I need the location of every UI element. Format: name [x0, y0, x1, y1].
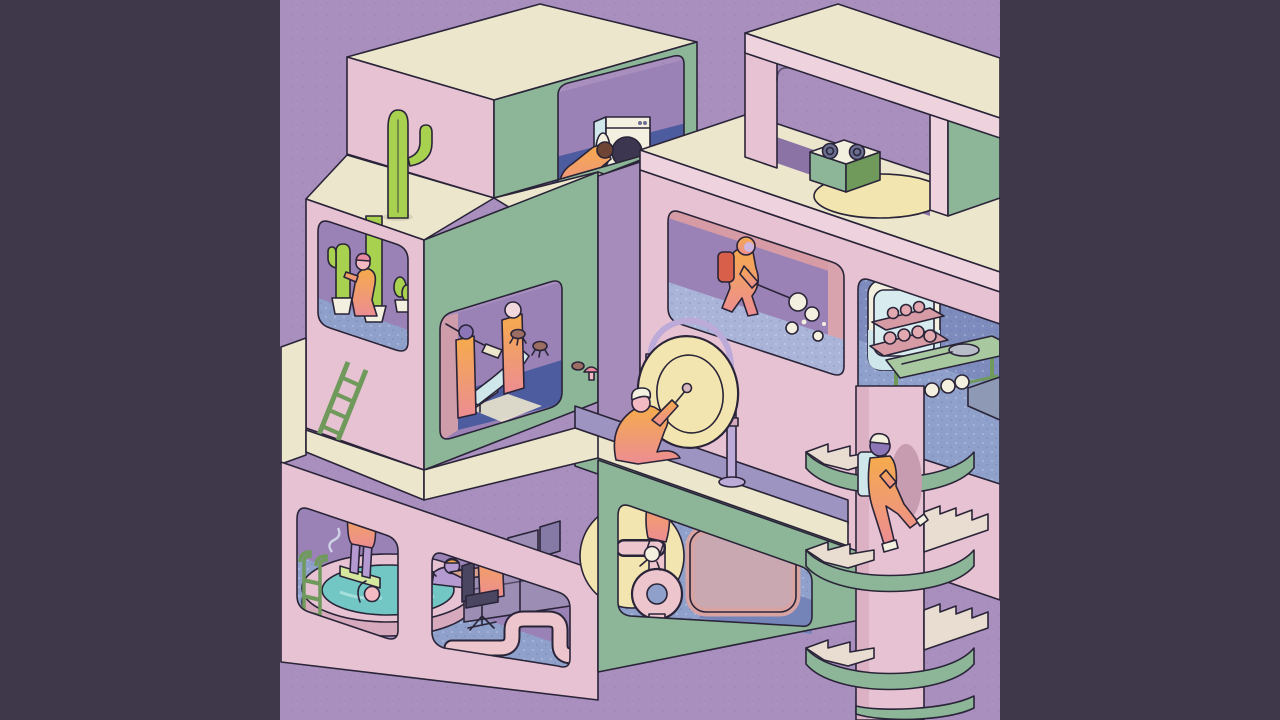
- gong-mallet: [683, 384, 692, 393]
- letterbox-right: [1000, 0, 1280, 720]
- assistant-person: [456, 325, 476, 418]
- climber-cap: [870, 434, 889, 444]
- arch-left-leg: [745, 51, 777, 168]
- stove-icon: [810, 140, 880, 192]
- laundry-person-head: [597, 142, 613, 158]
- letterbox-left: [0, 0, 280, 720]
- illustration-canvas: [0, 0, 1280, 720]
- album-art-illustration: [0, 0, 1280, 720]
- cactus-pot: [332, 298, 352, 314]
- baking-peel: [949, 344, 979, 356]
- gardener-hair: [356, 254, 370, 261]
- bug-icon: [572, 362, 584, 370]
- spray-tank: [718, 252, 734, 282]
